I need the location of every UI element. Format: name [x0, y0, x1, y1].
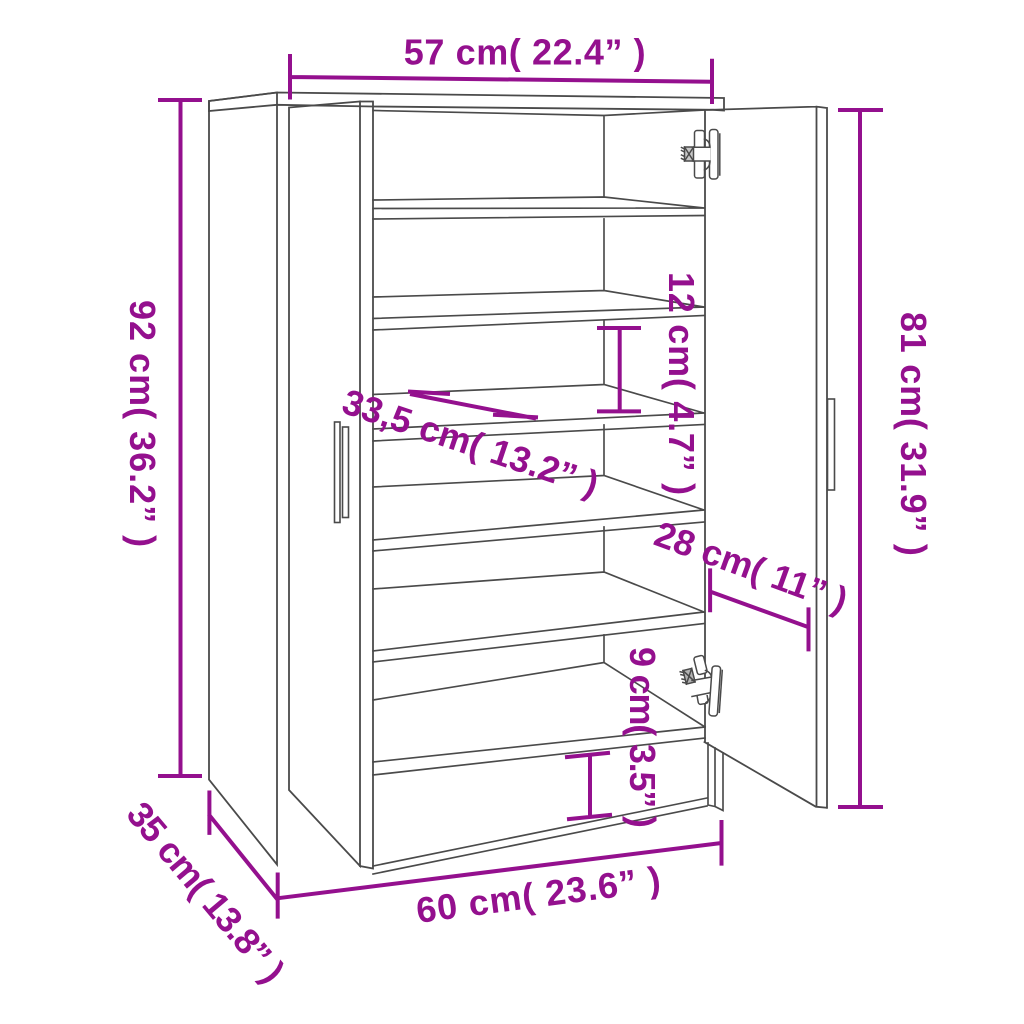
svg-text:57 cm( 22.4” ): 57 cm( 22.4” )	[404, 32, 647, 73]
svg-text:81 cm( 31.9” ): 81 cm( 31.9” )	[893, 312, 934, 557]
svg-text:33,5 cm( 13.2” ): 33,5 cm( 13.2” )	[337, 381, 604, 505]
svg-text:60 cm( 23.6” ): 60 cm( 23.6” )	[414, 858, 664, 931]
svg-text:35 cm( 13.8” ): 35 cm( 13.8” )	[119, 794, 293, 990]
svg-text:92 cm( 36.2” ): 92 cm( 36.2” )	[122, 300, 163, 548]
svg-text:12 cm( 4.7” ): 12 cm( 4.7” )	[661, 272, 702, 496]
svg-text:9 cm( 3.5” ): 9 cm( 3.5” )	[622, 647, 663, 827]
